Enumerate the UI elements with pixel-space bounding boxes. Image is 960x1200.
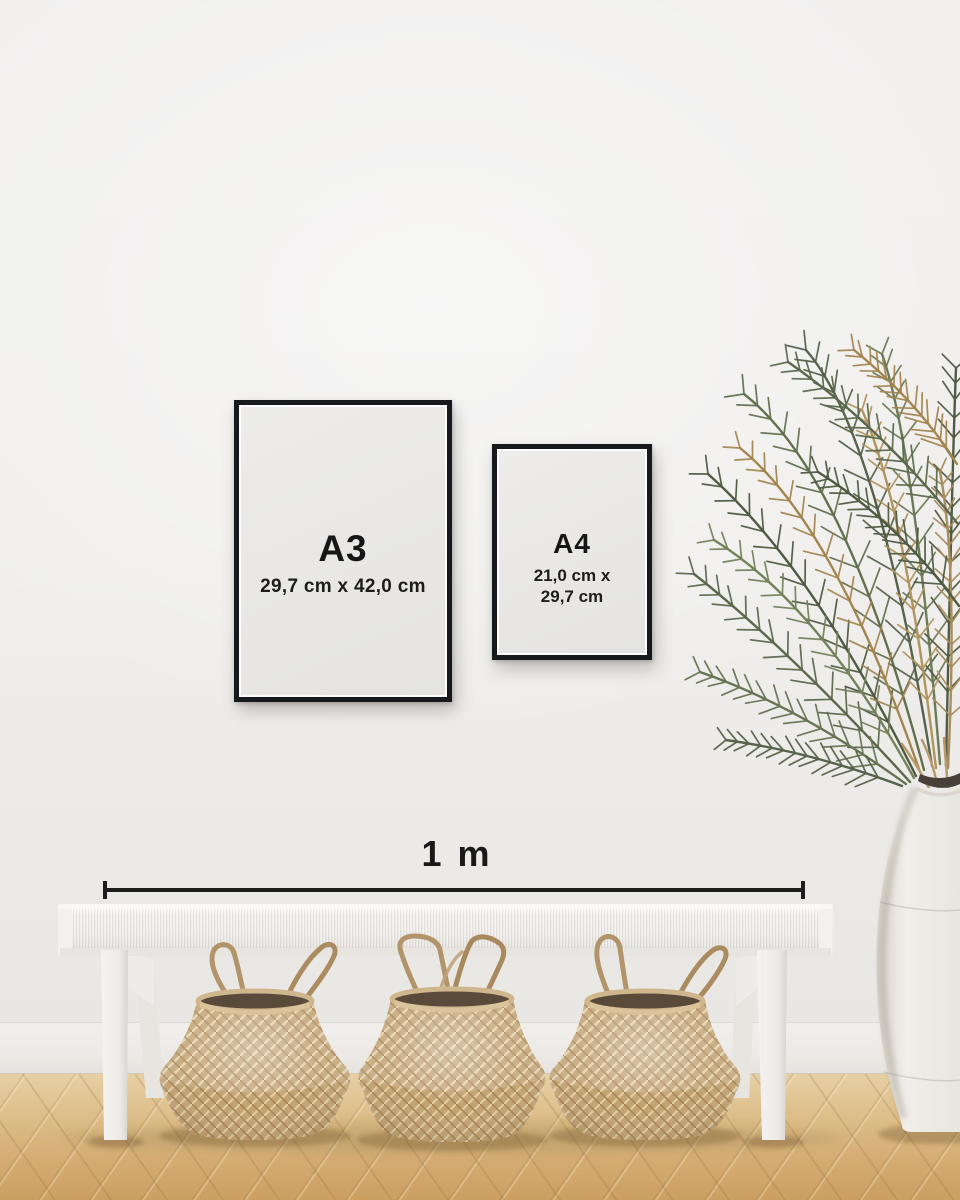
scale-line: [103, 888, 805, 892]
poster-size-mockup-scene: A3 29,7 cm x 42,0 cm A4 21,0 cm x 29,7 c…: [0, 0, 960, 1200]
frame-a4-paper: A4 21,0 cm x 29,7 cm: [497, 449, 647, 655]
frame-a3-size: 29,7 cm x 42,0 cm: [260, 576, 426, 598]
frame-a4-size-line-2: 29,7 cm: [534, 586, 611, 607]
frame-a3-label: A3: [260, 530, 426, 569]
scale-tick-left: [103, 881, 107, 899]
frame-a4: A4 21,0 cm x 29,7 cm: [492, 444, 652, 660]
scale-tick-right: [801, 881, 805, 899]
wood-floor: [0, 1074, 960, 1200]
frame-a4-label: A4: [534, 529, 611, 558]
frame-a4-size: 21,0 cm x 29,7 cm: [534, 565, 611, 608]
baseboard: [0, 1022, 960, 1075]
frame-a3: A3 29,7 cm x 42,0 cm: [234, 400, 452, 702]
scale-label: 1 m: [357, 833, 557, 875]
frame-a3-paper: A3 29,7 cm x 42,0 cm: [239, 405, 447, 697]
frame-a4-size-line-1: 21,0 cm x: [534, 565, 611, 586]
